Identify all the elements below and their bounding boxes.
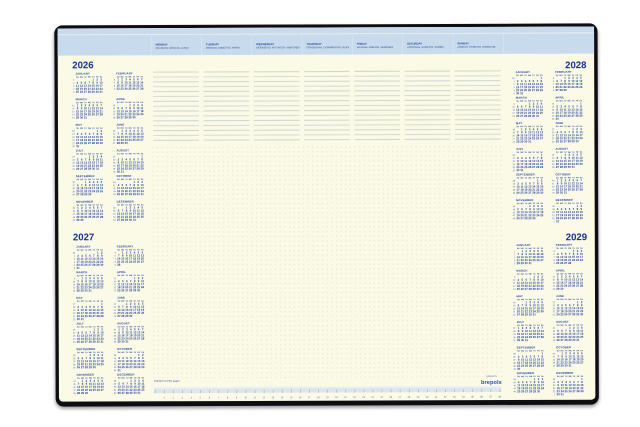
svg-text:27: 27	[540, 136, 544, 140]
svg-text:MO: MO	[121, 352, 125, 354]
svg-text:OCTOBER: OCTOBER	[117, 347, 132, 351]
svg-text:MAY: MAY	[516, 294, 522, 298]
svg-text:30: 30	[100, 263, 104, 267]
svg-text:30: 30	[85, 391, 89, 395]
svg-text:31: 31	[533, 312, 537, 316]
svg-text:MO: MO	[520, 152, 524, 154]
svg-text:OCTOBER: OCTOBER	[556, 345, 571, 349]
svg-text:SEPTEMBER: SEPTEMBER	[76, 347, 95, 351]
svg-text:APRIL: APRIL	[117, 270, 126, 274]
svg-text:VRIJDAG. FREITAG. VENDREDI: VRIJDAG. FREITAG. VENDREDI	[357, 46, 394, 49]
svg-text:JULY: JULY	[517, 320, 525, 324]
svg-text:29: 29	[579, 114, 583, 118]
svg-text:31: 31	[528, 139, 532, 143]
svg-text:28: 28	[100, 215, 104, 219]
svg-text:27: 27	[580, 360, 584, 364]
svg-text:31: 31	[564, 191, 568, 195]
svg-text:31: 31	[125, 340, 129, 344]
svg-text:MO: MO	[80, 179, 84, 181]
svg-text:30: 30	[141, 365, 145, 369]
svg-text:OCTOBER: OCTOBER	[117, 174, 132, 178]
svg-text:ZONDAG. SONNTAG. DIMANCHE: ZONDAG. SONNTAG. DIMANCHE	[457, 46, 495, 49]
svg-text:28: 28	[568, 261, 572, 265]
svg-text:31: 31	[568, 363, 572, 367]
svg-text:29: 29	[540, 165, 544, 169]
svg-text:27: 27	[140, 138, 144, 142]
svg-text:26: 26	[141, 215, 145, 219]
svg-text:MO: MO	[121, 102, 125, 104]
svg-text:JUNE: JUNE	[116, 123, 124, 127]
svg-text:31: 31	[556, 219, 560, 223]
svg-text:MO: MO	[121, 205, 125, 207]
svg-text:APRIL: APRIL	[556, 268, 565, 272]
svg-text:2026: 2026	[72, 60, 93, 71]
svg-text:MO: MO	[560, 75, 564, 77]
svg-text:28: 28	[100, 112, 104, 116]
svg-text:27: 27	[100, 285, 104, 289]
svg-text:MO: MO	[521, 299, 525, 301]
svg-text:30: 30	[532, 216, 536, 220]
svg-text:31: 31	[572, 165, 576, 169]
svg-text:MO: MO	[520, 101, 524, 103]
svg-text:31: 31	[141, 192, 145, 196]
svg-text:MO: MO	[80, 77, 84, 79]
svg-text:MO: MO	[560, 248, 564, 250]
svg-text:brepols: brepols	[481, 380, 502, 386]
svg-text:24: 24	[541, 386, 545, 390]
svg-text:2027: 2027	[73, 232, 94, 243]
svg-text:NOVEMBER: NOVEMBER	[517, 371, 534, 375]
svg-text:DONDERDAG. DONNERSTAG. JEUDI: DONDERDAG. DONNERSTAG. JEUDI	[306, 46, 349, 49]
svg-text:MO: MO	[121, 275, 125, 277]
svg-text:30: 30	[540, 191, 544, 195]
svg-text:APRIL: APRIL	[555, 95, 564, 99]
svg-text:APRIL: APRIL	[116, 97, 125, 101]
svg-text:26: 26	[541, 309, 545, 313]
svg-text:25: 25	[141, 388, 145, 392]
svg-text:28: 28	[140, 87, 144, 91]
svg-text:27: 27	[540, 258, 544, 262]
svg-text:MAY: MAY	[76, 296, 82, 300]
svg-text:MO: MO	[561, 376, 565, 378]
svg-text:MO: MO	[122, 378, 126, 380]
svg-text:29: 29	[580, 389, 584, 393]
svg-text:MARCH: MARCH	[516, 96, 527, 100]
svg-text:25: 25	[540, 213, 544, 217]
svg-text:30: 30	[537, 389, 541, 393]
svg-text:MO: MO	[560, 152, 564, 154]
svg-text:DECEMBER: DECEMBER	[556, 371, 573, 375]
svg-text:28: 28	[141, 336, 145, 340]
svg-text:AUGUST: AUGUST	[117, 321, 130, 325]
svg-text:31: 31	[137, 391, 141, 395]
svg-text:ZATERDAG. SAMSTAG. SAMEDI: ZATERDAG. SAMSTAG. SAMEDI	[407, 46, 444, 49]
svg-text:28: 28	[580, 284, 584, 288]
svg-text:MO: MO	[80, 128, 84, 130]
svg-text:24: 24	[141, 285, 145, 289]
svg-text:MO: MO	[81, 250, 85, 252]
svg-text:25: 25	[100, 164, 104, 168]
svg-text:MO: MO	[121, 153, 125, 155]
svg-text:29: 29	[540, 88, 544, 92]
svg-text:29: 29	[141, 166, 145, 170]
svg-text:MO: MO	[121, 179, 125, 181]
svg-text:JULY: JULY	[516, 147, 524, 151]
svg-text:DECEMBER: DECEMBER	[117, 373, 134, 377]
svg-text:MO: MO	[560, 100, 564, 102]
svg-text:MO: MO	[81, 352, 85, 354]
svg-text:MARCH: MARCH	[76, 97, 87, 101]
svg-text:MO: MO	[521, 274, 525, 276]
svg-text:MO: MO	[121, 301, 125, 303]
svg-text:DECEMBER: DECEMBER	[117, 200, 134, 204]
svg-text:OCTOBER: OCTOBER	[556, 172, 571, 176]
svg-text:30: 30	[80, 218, 84, 222]
svg-text:24: 24	[580, 258, 584, 262]
svg-text:31: 31	[96, 167, 100, 171]
svg-text:MO: MO	[81, 301, 85, 303]
svg-text:30: 30	[580, 312, 584, 316]
svg-text:MO: MO	[560, 299, 564, 301]
svg-text:JANUARY: JANUARY	[76, 245, 90, 249]
svg-text:JANUARY: JANUARY	[516, 243, 530, 247]
svg-text:31: 31	[100, 90, 104, 94]
svg-text:SEPTEMBER: SEPTEMBER	[516, 172, 535, 176]
svg-text:25: 25	[140, 112, 144, 116]
svg-text:NOVEMBER: NOVEMBER	[76, 200, 93, 204]
svg-text:NOVEMBER: NOVEMBER	[516, 198, 533, 202]
svg-text:SEPTEMBER: SEPTEMBER	[76, 174, 95, 178]
svg-text:MO: MO	[520, 75, 524, 77]
svg-text:30: 30	[132, 115, 136, 119]
svg-text:30: 30	[125, 141, 129, 145]
svg-text:MARCH: MARCH	[76, 270, 87, 274]
svg-text:31: 31	[576, 338, 580, 342]
svg-text:24: 24	[579, 136, 583, 140]
svg-text:26: 26	[579, 85, 583, 89]
svg-text:31: 31	[561, 392, 565, 396]
svg-text:29: 29	[100, 314, 104, 318]
svg-text:MO: MO	[560, 126, 564, 128]
svg-text:DECEMBER: DECEMBER	[556, 198, 573, 202]
svg-text:MAANDAG. MONTAG. LUNDI: MAANDAG. MONTAG. LUNDI	[156, 47, 189, 50]
svg-text:30: 30	[93, 365, 97, 369]
svg-text:MAY: MAY	[516, 121, 522, 125]
svg-text:29: 29	[563, 88, 567, 92]
svg-text:31: 31	[76, 144, 80, 148]
svg-text:30: 30	[560, 287, 564, 291]
svg-text:26: 26	[141, 311, 145, 315]
svg-text:JULY: JULY	[76, 321, 84, 325]
svg-text:Printed on FSC paper: Printed on FSC paper	[154, 380, 180, 383]
svg-text:25: 25	[540, 111, 544, 115]
svg-text:MO: MO	[560, 203, 564, 205]
svg-text:AUGUST: AUGUST	[556, 320, 569, 324]
svg-text:MO: MO	[81, 326, 85, 328]
svg-text:28: 28	[117, 263, 121, 267]
svg-text:28: 28	[541, 335, 545, 339]
svg-text:MO: MO	[521, 350, 525, 352]
svg-text:26: 26	[100, 189, 104, 193]
svg-text:25: 25	[580, 335, 584, 339]
svg-text:2029: 2029	[566, 232, 587, 243]
svg-text:31: 31	[529, 261, 533, 265]
svg-text:31: 31	[88, 288, 92, 292]
svg-text:31: 31	[84, 115, 88, 119]
svg-text:FEBRUARY: FEBRUARY	[117, 244, 134, 248]
svg-text:DINSDAG. DIENSTAG. MARDI: DINSDAG. DIENSTAG. MARDI	[206, 47, 240, 50]
svg-text:MARCH: MARCH	[516, 269, 527, 273]
svg-text:FEBRUARY: FEBRUARY	[556, 243, 573, 247]
svg-text:31: 31	[81, 317, 85, 321]
svg-text:31: 31	[100, 340, 104, 344]
svg-text:NOVEMBER: NOVEMBER	[77, 373, 94, 377]
svg-text:29: 29	[541, 364, 545, 368]
svg-text:25: 25	[101, 362, 105, 366]
svg-text:31: 31	[536, 114, 540, 118]
svg-text:JULY: JULY	[76, 148, 84, 152]
svg-text:WOENSDAG. MITTWOCH. MERCREDI: WOENSDAG. MITTWOCH. MERCREDI	[256, 46, 300, 49]
svg-text:30: 30	[88, 192, 92, 196]
svg-text:30: 30	[100, 141, 104, 145]
svg-text:JUNE: JUNE	[555, 121, 563, 125]
svg-text:JANUARY: JANUARY	[75, 72, 89, 76]
svg-text:28: 28	[580, 187, 584, 191]
svg-text:MO: MO	[80, 153, 84, 155]
svg-text:26: 26	[580, 162, 584, 166]
svg-text:AUGUST: AUGUST	[116, 148, 129, 152]
svg-text:27: 27	[141, 260, 145, 264]
svg-text:MAY: MAY	[76, 123, 82, 127]
svg-text:JUNE: JUNE	[556, 294, 564, 298]
svg-text:27: 27	[101, 388, 105, 392]
svg-text:JUNE: JUNE	[117, 296, 125, 300]
svg-text:MO: MO	[521, 203, 525, 205]
svg-text:SEPTEMBER: SEPTEMBER	[517, 345, 536, 349]
svg-text:30: 30	[129, 314, 133, 318]
svg-text:31: 31	[133, 218, 137, 222]
svg-text:31: 31	[540, 287, 544, 291]
svg-text:JANUARY: JANUARY	[516, 70, 530, 74]
svg-text:MO: MO	[520, 177, 524, 179]
svg-text:MO: MO	[521, 376, 525, 378]
svg-text:MO: MO	[560, 325, 564, 327]
svg-text:31: 31	[525, 338, 529, 342]
svg-text:30: 30	[576, 139, 580, 143]
svg-text:Published by: Published by	[486, 376, 497, 378]
svg-text:FEBRUARY: FEBRUARY	[555, 70, 572, 74]
svg-text:30: 30	[580, 216, 584, 220]
svg-text:AUGUST: AUGUST	[555, 147, 568, 151]
svg-text:FEBRUARY: FEBRUARY	[116, 71, 133, 75]
svg-text:30: 30	[137, 288, 141, 292]
